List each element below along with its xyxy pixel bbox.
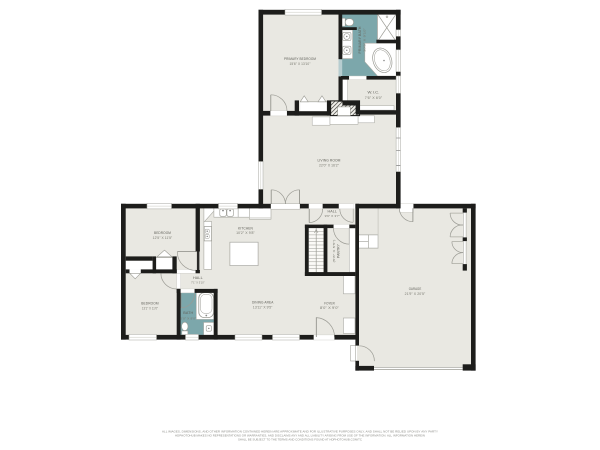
svg-text:BATH: BATH bbox=[183, 311, 193, 315]
svg-text:5'0" X 8'0": 5'0" X 8'0" bbox=[180, 316, 196, 320]
svg-text:PRIMARY BEDROOM: PRIMARY BEDROOM bbox=[284, 56, 316, 61]
svg-text:7'1" X 3'10": 7'1" X 3'10" bbox=[191, 280, 205, 284]
svg-text:12'5" X 11'5": 12'5" X 11'5" bbox=[153, 236, 173, 240]
svg-text:SHALL BE SUBJECT TO THE TERMS: SHALL BE SUBJECT TO THE TERMS AND CONDIT… bbox=[238, 438, 363, 442]
svg-text:13'1" X 11'0": 13'1" X 11'0" bbox=[142, 307, 159, 311]
svg-text:13'11" X 9'5": 13'11" X 9'5" bbox=[253, 306, 273, 310]
svg-text:DINING AREA: DINING AREA bbox=[252, 300, 274, 305]
svg-text:KITCHEN: KITCHEN bbox=[238, 225, 253, 230]
svg-text:BEDROOM: BEDROOM bbox=[154, 230, 171, 235]
svg-text:15'6" X 13'10": 15'6" X 13'10" bbox=[290, 62, 312, 66]
svg-text:PRIMARY BATH: PRIMARY BATH bbox=[358, 26, 362, 54]
svg-text:7'6" X 6'0": 7'6" X 6'0" bbox=[365, 96, 383, 100]
svg-text:W.I.C.: W.I.C. bbox=[368, 90, 380, 94]
svg-text:HALL: HALL bbox=[328, 210, 338, 214]
svg-text:BEDROOM: BEDROOM bbox=[141, 300, 159, 305]
svg-text:21'9" X 20'5": 21'9" X 20'5" bbox=[405, 292, 426, 296]
svg-text:GARAGE: GARAGE bbox=[409, 287, 422, 291]
svg-text:9'6" X 3'7": 9'6" X 3'7" bbox=[325, 214, 340, 218]
svg-text:10'2" X 9'8": 10'2" X 9'8" bbox=[236, 231, 255, 235]
svg-text:8'0" X 9'0": 8'0" X 9'0" bbox=[320, 306, 340, 310]
svg-text:10'5" X 9'10": 10'5" X 9'10" bbox=[363, 28, 367, 52]
svg-text:LIVING ROOM: LIVING ROOM bbox=[318, 157, 341, 162]
svg-text:FOYER: FOYER bbox=[324, 301, 335, 305]
svg-text:PANTRY: PANTRY bbox=[336, 243, 340, 258]
svg-text:22'0" X 16'2": 22'0" X 16'2" bbox=[319, 164, 340, 168]
